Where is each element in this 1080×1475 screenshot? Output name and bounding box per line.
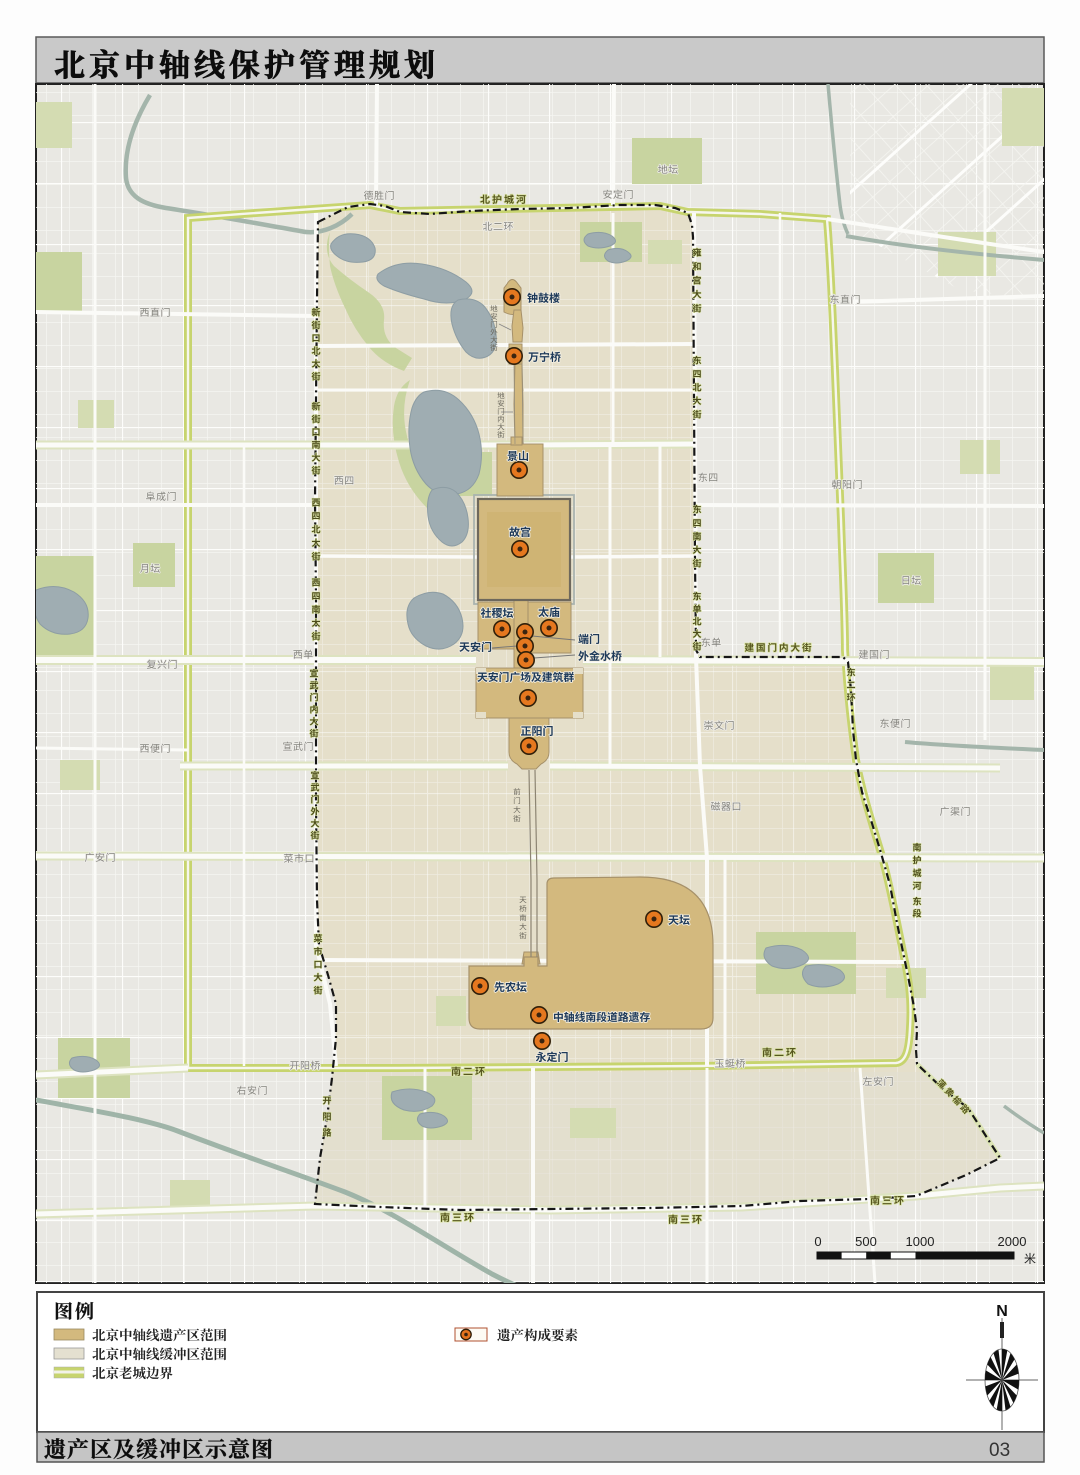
svg-text:03: 03 [989, 1440, 1010, 1461]
svg-text:1000: 1000 [906, 1234, 935, 1249]
svg-text:0: 0 [814, 1234, 821, 1249]
svg-text:2000: 2000 [998, 1234, 1027, 1249]
svg-text:500: 500 [855, 1234, 877, 1249]
svg-text:N: N [996, 1303, 1008, 1320]
